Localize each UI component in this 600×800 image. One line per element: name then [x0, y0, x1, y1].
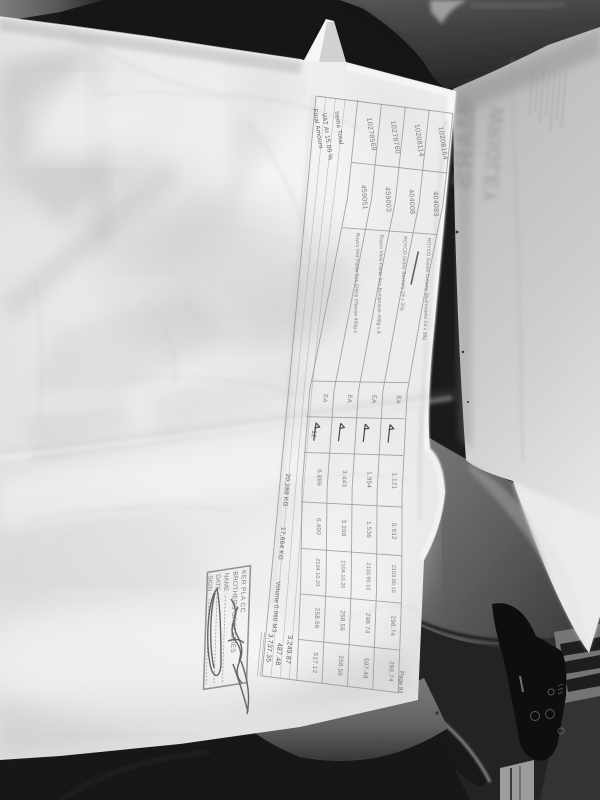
svg-text:EA: EA [345, 394, 352, 403]
svg-text:EA: EA [394, 395, 401, 404]
svg-text:1.536: 1.536 [365, 521, 372, 538]
svg-text:2104.10.20: 2104.10.20 [314, 558, 320, 586]
svg-text:258.56: 258.56 [338, 610, 346, 631]
svg-text:3.443: 3.443 [340, 470, 347, 487]
svg-text:2104.10.20: 2104.10.20 [339, 560, 345, 588]
svg-text:404083: 404083 [431, 191, 439, 216]
svg-text:404008: 404008 [407, 189, 415, 214]
svg-text:2103.90.10: 2103.90.10 [365, 562, 371, 590]
svg-text:298.74: 298.74 [389, 615, 397, 636]
svg-text:SIGN :: SIGN : [206, 575, 214, 595]
svg-text:EA: EA [321, 394, 328, 403]
svg-text:6.886: 6.886 [315, 469, 323, 486]
svg-text:459003: 459003 [383, 187, 391, 213]
svg-text:1.954: 1.954 [365, 471, 372, 488]
svg-text:298.74: 298.74 [387, 661, 395, 682]
svg-text:EA: EA [370, 395, 377, 404]
svg-text:12: 12 [310, 430, 318, 438]
svg-text:6.400: 6.400 [315, 518, 322, 535]
svg-text:597.48: 597.48 [361, 658, 369, 679]
svg-text:NAME :: NAME : [222, 572, 230, 595]
svg-text:298.74: 298.74 [363, 613, 371, 634]
svg-text:3.200: 3.200 [340, 519, 347, 536]
svg-text:258.56: 258.56 [336, 655, 344, 676]
svg-text:258.56: 258.56 [313, 608, 321, 629]
svg-text:517.12: 517.12 [311, 652, 319, 673]
svg-text:0.912: 0.912 [390, 523, 397, 540]
svg-text:1.121: 1.121 [390, 472, 397, 489]
svg-text:2103.90.10: 2103.90.10 [390, 565, 396, 593]
